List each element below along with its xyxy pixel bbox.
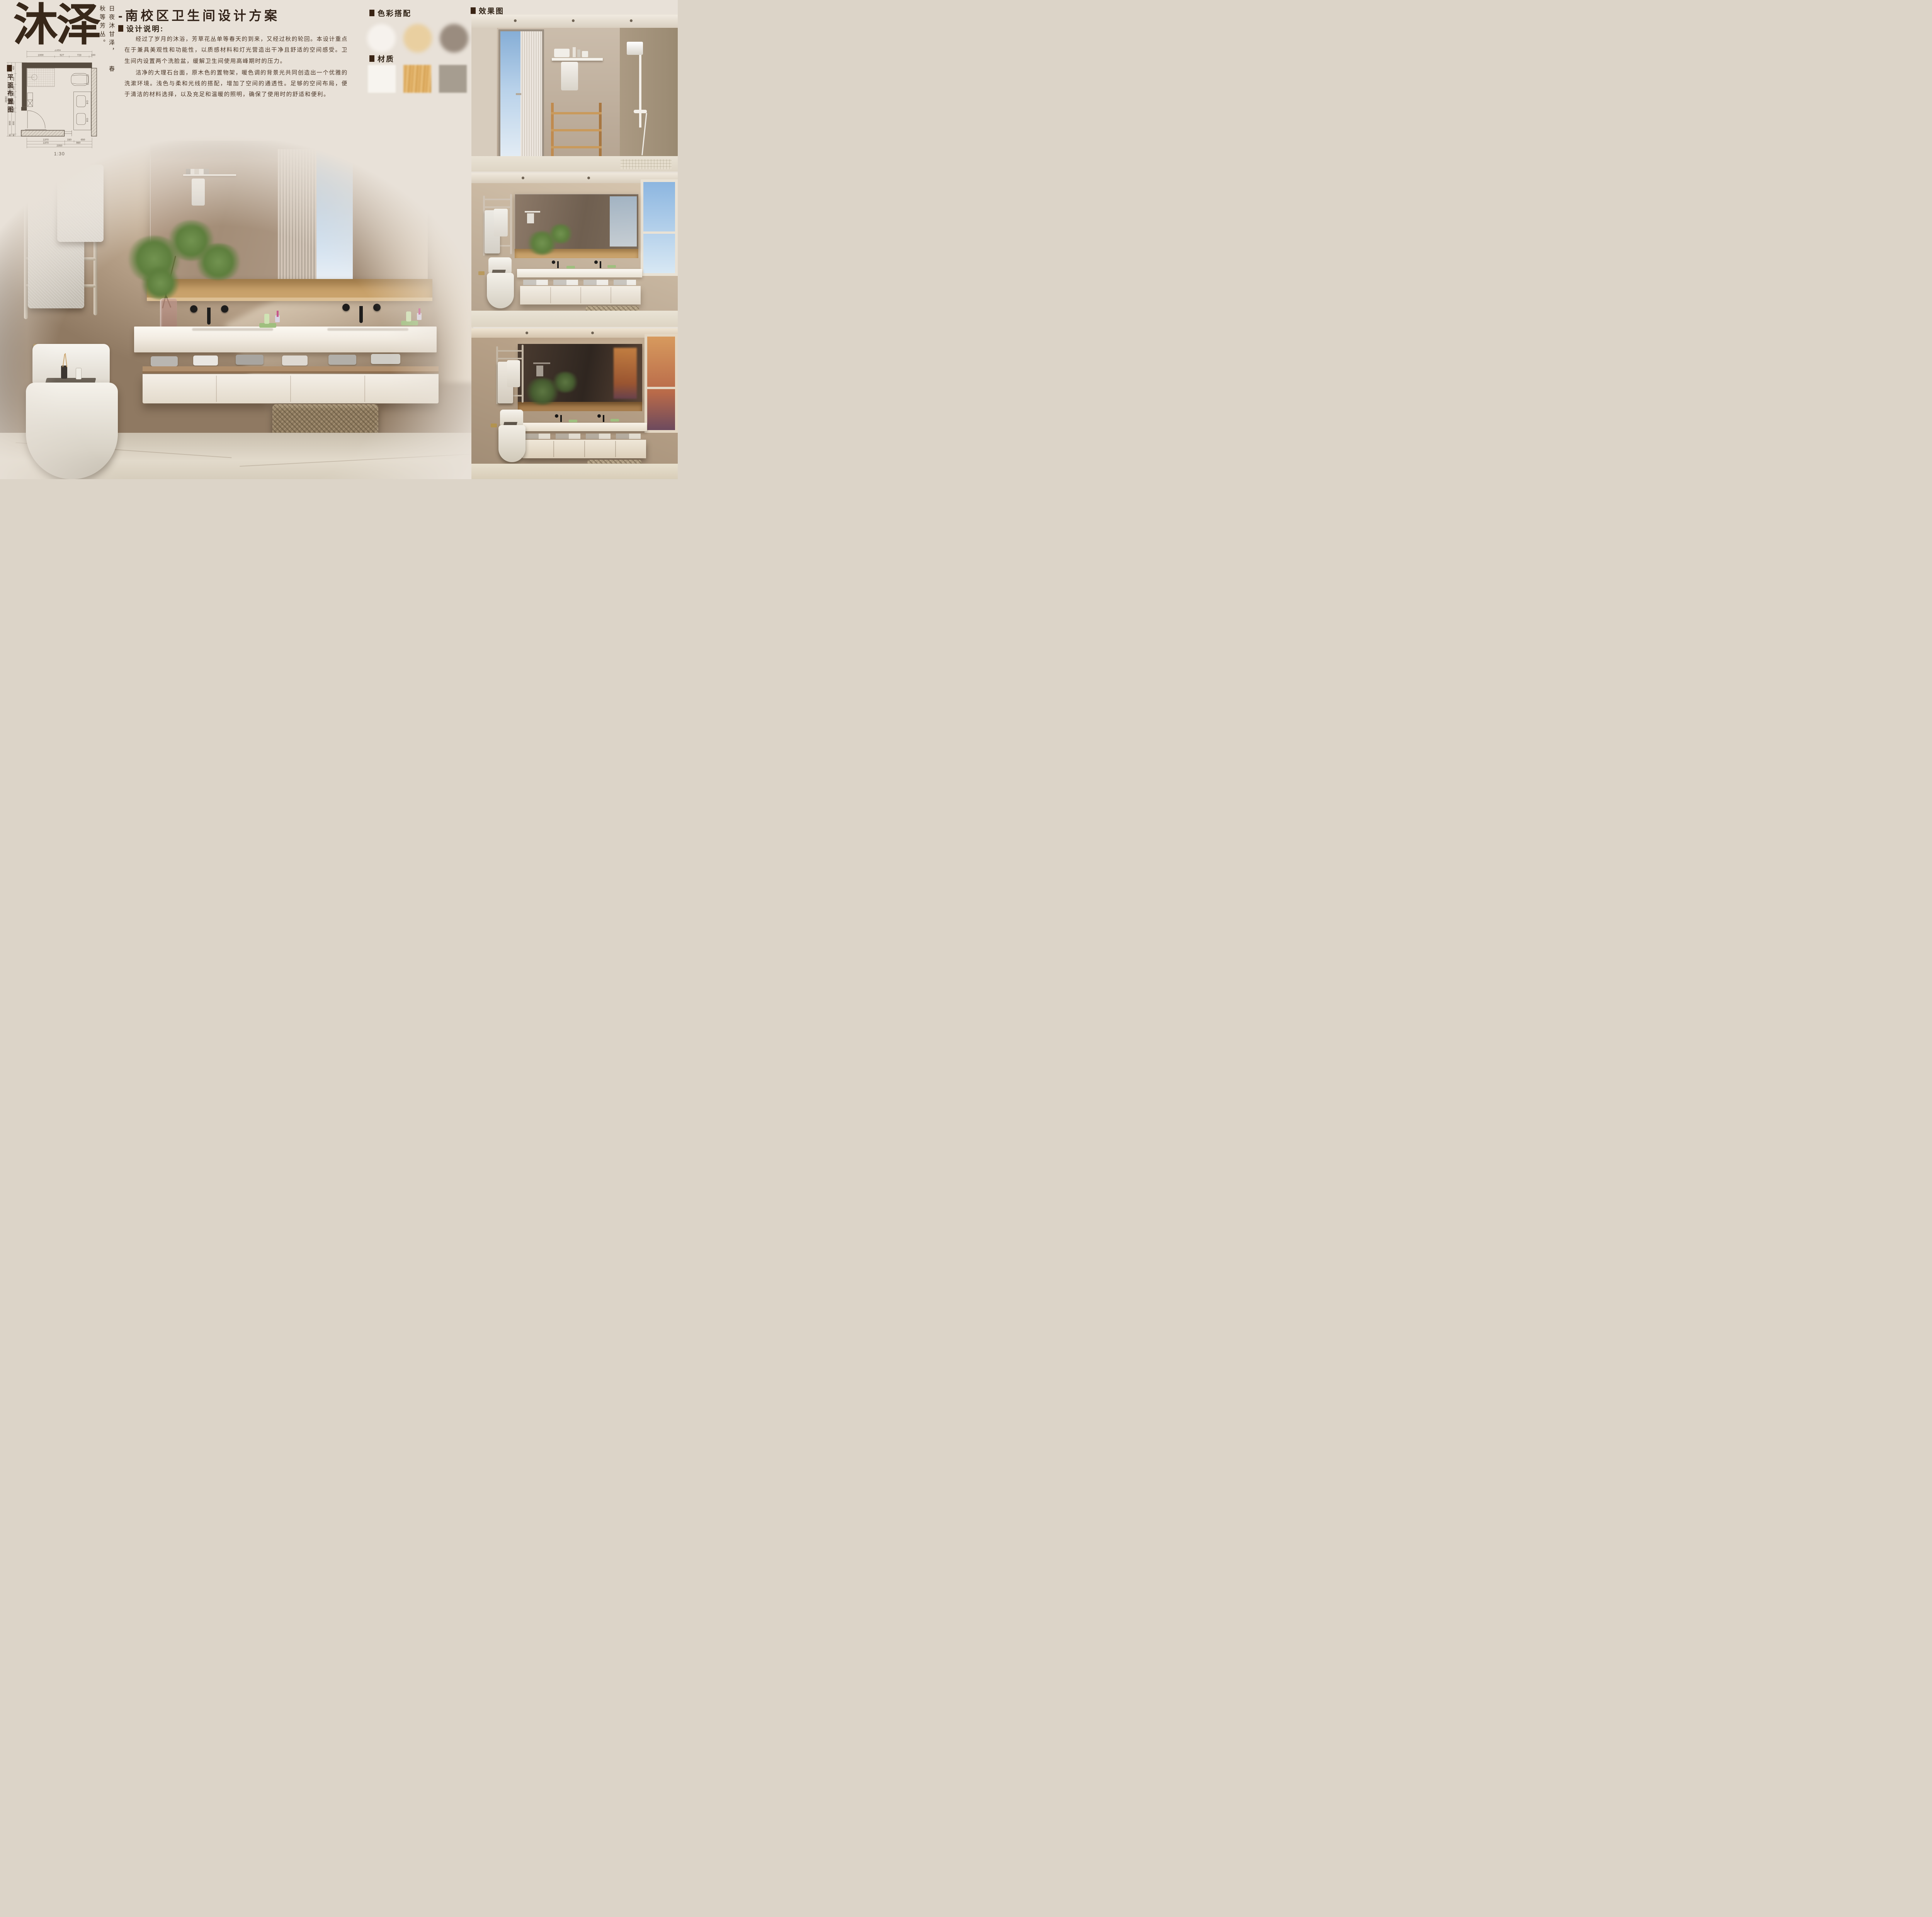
drawer-seam bbox=[615, 441, 616, 457]
amenity-brush bbox=[418, 308, 420, 315]
plant-foliage bbox=[193, 243, 243, 280]
window-mullion bbox=[643, 231, 675, 234]
vanity-drawers bbox=[520, 286, 641, 304]
color-swatch-sand-beige bbox=[403, 24, 432, 53]
faucet-handle bbox=[555, 414, 558, 418]
drawer-seam bbox=[364, 376, 365, 402]
towel-rack-rail bbox=[522, 345, 524, 403]
vanity-open-shelf bbox=[143, 366, 439, 371]
mirror-shelf-items-reflection bbox=[186, 169, 209, 174]
mirror-towel-reflection bbox=[527, 213, 534, 223]
design-notes-paragraph-1: 经过了岁月的沐浴，芳草花丛单等春天的到来，又经过秋的轮回。本设计重点在于兼具美观… bbox=[124, 34, 348, 67]
mirror-shelf-reflection bbox=[183, 174, 236, 176]
folded-towels bbox=[193, 356, 218, 366]
floor-seam bbox=[240, 454, 471, 466]
folded-towels bbox=[371, 354, 400, 364]
amenity-bottle bbox=[264, 314, 269, 324]
faucet-spout bbox=[600, 261, 601, 268]
dim-bottom: 330 bbox=[67, 139, 71, 141]
towel-texture bbox=[57, 165, 104, 242]
square-bullet-icon bbox=[118, 25, 123, 32]
faucet-spout bbox=[560, 415, 562, 422]
dim-left-mid: 1810 bbox=[9, 85, 12, 90]
folded-towels bbox=[282, 356, 308, 366]
dim-lines-top bbox=[27, 51, 92, 58]
amenity-brush bbox=[277, 311, 279, 317]
plant-foliage bbox=[139, 267, 182, 299]
faucet-spout bbox=[207, 308, 211, 325]
wood-niche-lip bbox=[147, 298, 432, 301]
render-shower-room bbox=[471, 15, 678, 172]
amenity-bottle bbox=[406, 311, 411, 321]
ceiling-spotlight bbox=[630, 19, 633, 22]
double-sink-countertop bbox=[517, 269, 642, 277]
towel-rack-bar bbox=[496, 350, 524, 352]
folded-towels bbox=[236, 355, 264, 365]
mirror-door-reflection bbox=[278, 149, 317, 281]
pump-bottle bbox=[76, 368, 82, 379]
glass-door bbox=[498, 29, 544, 164]
drawer-seam bbox=[553, 441, 554, 457]
folded-towels-row bbox=[523, 280, 636, 285]
folded-towels bbox=[328, 355, 356, 365]
dim-left-inner: 800 bbox=[12, 121, 15, 125]
dim-left-inner: 200 bbox=[12, 92, 15, 96]
hanging-towel-small bbox=[494, 209, 508, 236]
renders-header: 效果图 bbox=[471, 5, 504, 16]
ceiling-spotlight bbox=[514, 19, 517, 22]
drawer-seam bbox=[584, 441, 585, 457]
plan-scale: 1:30 bbox=[54, 151, 65, 156]
material-swatch-light-wood bbox=[403, 65, 431, 93]
toilet-paper-holder bbox=[478, 271, 485, 275]
design-notes-paragraph-2: 洁净的大理石台面，原木色的置物架，暖色调的背景光共同创造出一个优雅的洗漱环境。浅… bbox=[124, 68, 348, 100]
window bbox=[641, 179, 678, 276]
mirror-window-reflection bbox=[610, 196, 637, 247]
materials-heading: 材质 bbox=[378, 53, 395, 64]
left-wall bbox=[471, 15, 497, 172]
design-notes-heading: 设计说明: bbox=[126, 23, 164, 34]
floor bbox=[471, 311, 678, 327]
plan-wall-left-end bbox=[21, 107, 27, 111]
render-vanity-day bbox=[471, 173, 678, 327]
mirror-shelf-reflection bbox=[533, 362, 550, 364]
renders-heading: 效果图 bbox=[479, 5, 504, 16]
dim-left-mid: 80 bbox=[9, 134, 12, 136]
brand-logo: 沐泽 bbox=[13, 2, 100, 49]
plan-wall-right-hatched bbox=[91, 68, 97, 136]
door-sky-view bbox=[500, 31, 520, 162]
faucet-spout bbox=[603, 415, 604, 422]
folded-towels bbox=[151, 356, 178, 366]
dim-left-inner: 150 bbox=[12, 108, 15, 112]
toilet-bowl bbox=[498, 425, 526, 462]
towel-rack-bar bbox=[483, 206, 512, 208]
toilet-tray bbox=[492, 270, 506, 273]
dim-top-seg: 100 bbox=[91, 54, 95, 56]
faucet-handle bbox=[342, 304, 350, 311]
plan-cabinet bbox=[27, 93, 33, 107]
vanity-drawers bbox=[522, 440, 646, 458]
dim-top-seg: 1000 bbox=[38, 54, 44, 56]
hanging-towel-small bbox=[507, 360, 520, 387]
plan-wall-top bbox=[22, 63, 92, 68]
design-board: 沐泽 日夜沐甘泽， 春秋等芳丛。 -南校区卫生间设计方案 设计说明: 经过了岁月… bbox=[0, 0, 678, 479]
hanging-towel-small bbox=[57, 165, 104, 242]
toilet-bowl bbox=[487, 273, 514, 308]
amenity-towel bbox=[566, 266, 575, 269]
vanity-drawers bbox=[143, 374, 439, 403]
plant-foliage bbox=[551, 372, 580, 393]
drawer-seam bbox=[611, 287, 611, 303]
ladder-shelf-tier bbox=[551, 112, 602, 114]
plan-wall-bottom-hatched bbox=[21, 130, 65, 136]
palette-heading: 色彩搭配 bbox=[378, 8, 412, 18]
shelf-bottle bbox=[573, 47, 576, 57]
drawer-seam bbox=[580, 287, 581, 303]
palette-swatches bbox=[367, 24, 468, 53]
shelf-bottle bbox=[577, 49, 580, 57]
faucet-handle bbox=[221, 305, 228, 313]
door-handle bbox=[516, 93, 521, 95]
toilet-tray bbox=[503, 422, 517, 425]
window-sunset bbox=[645, 334, 678, 433]
dim-bottom: 1370 bbox=[43, 139, 49, 141]
drawer-seam bbox=[550, 287, 551, 303]
toilet-bowl bbox=[26, 383, 118, 479]
ladder-shelf-tier bbox=[551, 146, 602, 148]
wall-shelf bbox=[552, 58, 603, 61]
plan-toilet bbox=[71, 73, 88, 86]
drawer-seam bbox=[290, 376, 291, 402]
faucet-handle bbox=[373, 304, 381, 311]
ceiling-spotlight bbox=[587, 177, 590, 179]
shower-mat bbox=[621, 159, 672, 169]
towel-rack-rail bbox=[24, 149, 28, 319]
amenity-towel bbox=[607, 265, 616, 268]
square-bullet-icon bbox=[369, 55, 374, 62]
ceiling-spotlight bbox=[526, 332, 528, 334]
faucet-spout bbox=[359, 306, 363, 323]
faucet-handle bbox=[190, 305, 197, 313]
window-mullion bbox=[647, 387, 675, 389]
floor-plan-drawing: 2350 1000 527 723 100 2690 1810 800 80 4… bbox=[2, 49, 101, 162]
color-swatch-taupe-grey bbox=[440, 24, 468, 53]
render-vanity-dusk bbox=[471, 328, 678, 479]
plan-vanity bbox=[73, 92, 91, 130]
shower-valve bbox=[634, 110, 647, 113]
palette-header: 色彩搭配 bbox=[369, 8, 412, 18]
faucet-handle bbox=[594, 260, 598, 264]
hanging-towel bbox=[561, 62, 578, 90]
mirror-towel-reflection bbox=[536, 366, 543, 376]
ladder-shelf-tier bbox=[551, 129, 602, 131]
dim-bottom: 650 bbox=[81, 139, 85, 141]
door-sheer-panel bbox=[520, 31, 542, 162]
floor bbox=[471, 464, 678, 479]
double-sink-countertop bbox=[134, 327, 437, 352]
dim-left-mid: 800 bbox=[9, 121, 12, 125]
square-bullet-icon bbox=[471, 7, 476, 14]
dim-left-total: 2690 bbox=[4, 96, 8, 102]
floor-plan: 2350 1000 527 723 100 2690 1810 800 80 4… bbox=[2, 49, 101, 162]
toilet-paper-holder bbox=[491, 424, 497, 427]
mirror-sky-reflection bbox=[316, 149, 352, 281]
ceiling-spotlight bbox=[522, 177, 524, 179]
double-sink-countertop bbox=[519, 423, 647, 431]
shelf-jar bbox=[582, 51, 588, 57]
dim-bottom: 1370 bbox=[43, 141, 49, 144]
design-notes-header: 设计说明: bbox=[118, 23, 164, 34]
sink-basin-right bbox=[327, 328, 408, 331]
faucet-handle bbox=[597, 414, 601, 418]
dim-left-inner: 400 bbox=[12, 77, 15, 81]
plan-threshold-steps bbox=[65, 130, 71, 136]
material-swatch-white-stone bbox=[368, 65, 396, 93]
mirror-wall-reflection bbox=[355, 141, 428, 281]
tagline-line-1: 日夜沐甘泽， bbox=[108, 5, 115, 56]
diffuser-bottle bbox=[61, 366, 67, 379]
square-bullet-icon bbox=[369, 10, 374, 16]
dim-left-inner: 260 bbox=[12, 86, 15, 90]
shelf-towel-stack bbox=[554, 49, 570, 57]
ceiling-spotlight bbox=[591, 332, 594, 334]
material-swatch-grey-stone bbox=[439, 65, 467, 93]
amenity-towel bbox=[569, 420, 577, 422]
page-title: -南校区卫生间设计方案 bbox=[118, 5, 280, 24]
plan-wall-left bbox=[22, 63, 27, 107]
plant-foliage bbox=[547, 224, 574, 243]
mirror-towel-reflection bbox=[192, 179, 205, 206]
ceiling-spotlight bbox=[572, 19, 575, 22]
dim-left-inner: 400 bbox=[12, 100, 15, 105]
dim-bottom-total: 2350 bbox=[56, 145, 62, 147]
faucet-spout bbox=[557, 261, 559, 268]
towel-rack-bar bbox=[496, 358, 524, 359]
dim-left-inner: 80 bbox=[13, 134, 15, 136]
sink-basin-left bbox=[192, 328, 273, 331]
faucet-handle bbox=[552, 260, 555, 264]
mirror-shelf-reflection bbox=[525, 211, 540, 213]
towel-rack-bar bbox=[483, 199, 512, 200]
right-wall bbox=[620, 15, 678, 172]
color-swatch-warm-white bbox=[367, 24, 396, 53]
folded-towels-row bbox=[526, 434, 641, 439]
plan-door bbox=[25, 111, 46, 129]
dim-left-inner: 400 bbox=[12, 66, 15, 70]
dim-top-total: 2350 bbox=[54, 49, 61, 52]
dim-bottom: 980 bbox=[76, 141, 80, 144]
materials-header: 材质 bbox=[369, 53, 395, 64]
mirror-sunset-reflection bbox=[614, 348, 637, 399]
shower-head bbox=[627, 42, 643, 55]
material-swatches bbox=[368, 65, 467, 93]
design-notes-body: 经过了岁月的沐浴，芳草花丛单等春天的到来，又经过秋的轮回。本设计重点在于兼具美观… bbox=[124, 34, 348, 101]
shower-column bbox=[639, 46, 641, 128]
drawer-seam bbox=[216, 376, 217, 402]
amenity-towel bbox=[611, 419, 619, 422]
dim-top-seg: 723 bbox=[77, 54, 81, 56]
dim-top-seg: 527 bbox=[60, 54, 64, 56]
ceiling bbox=[471, 15, 678, 28]
